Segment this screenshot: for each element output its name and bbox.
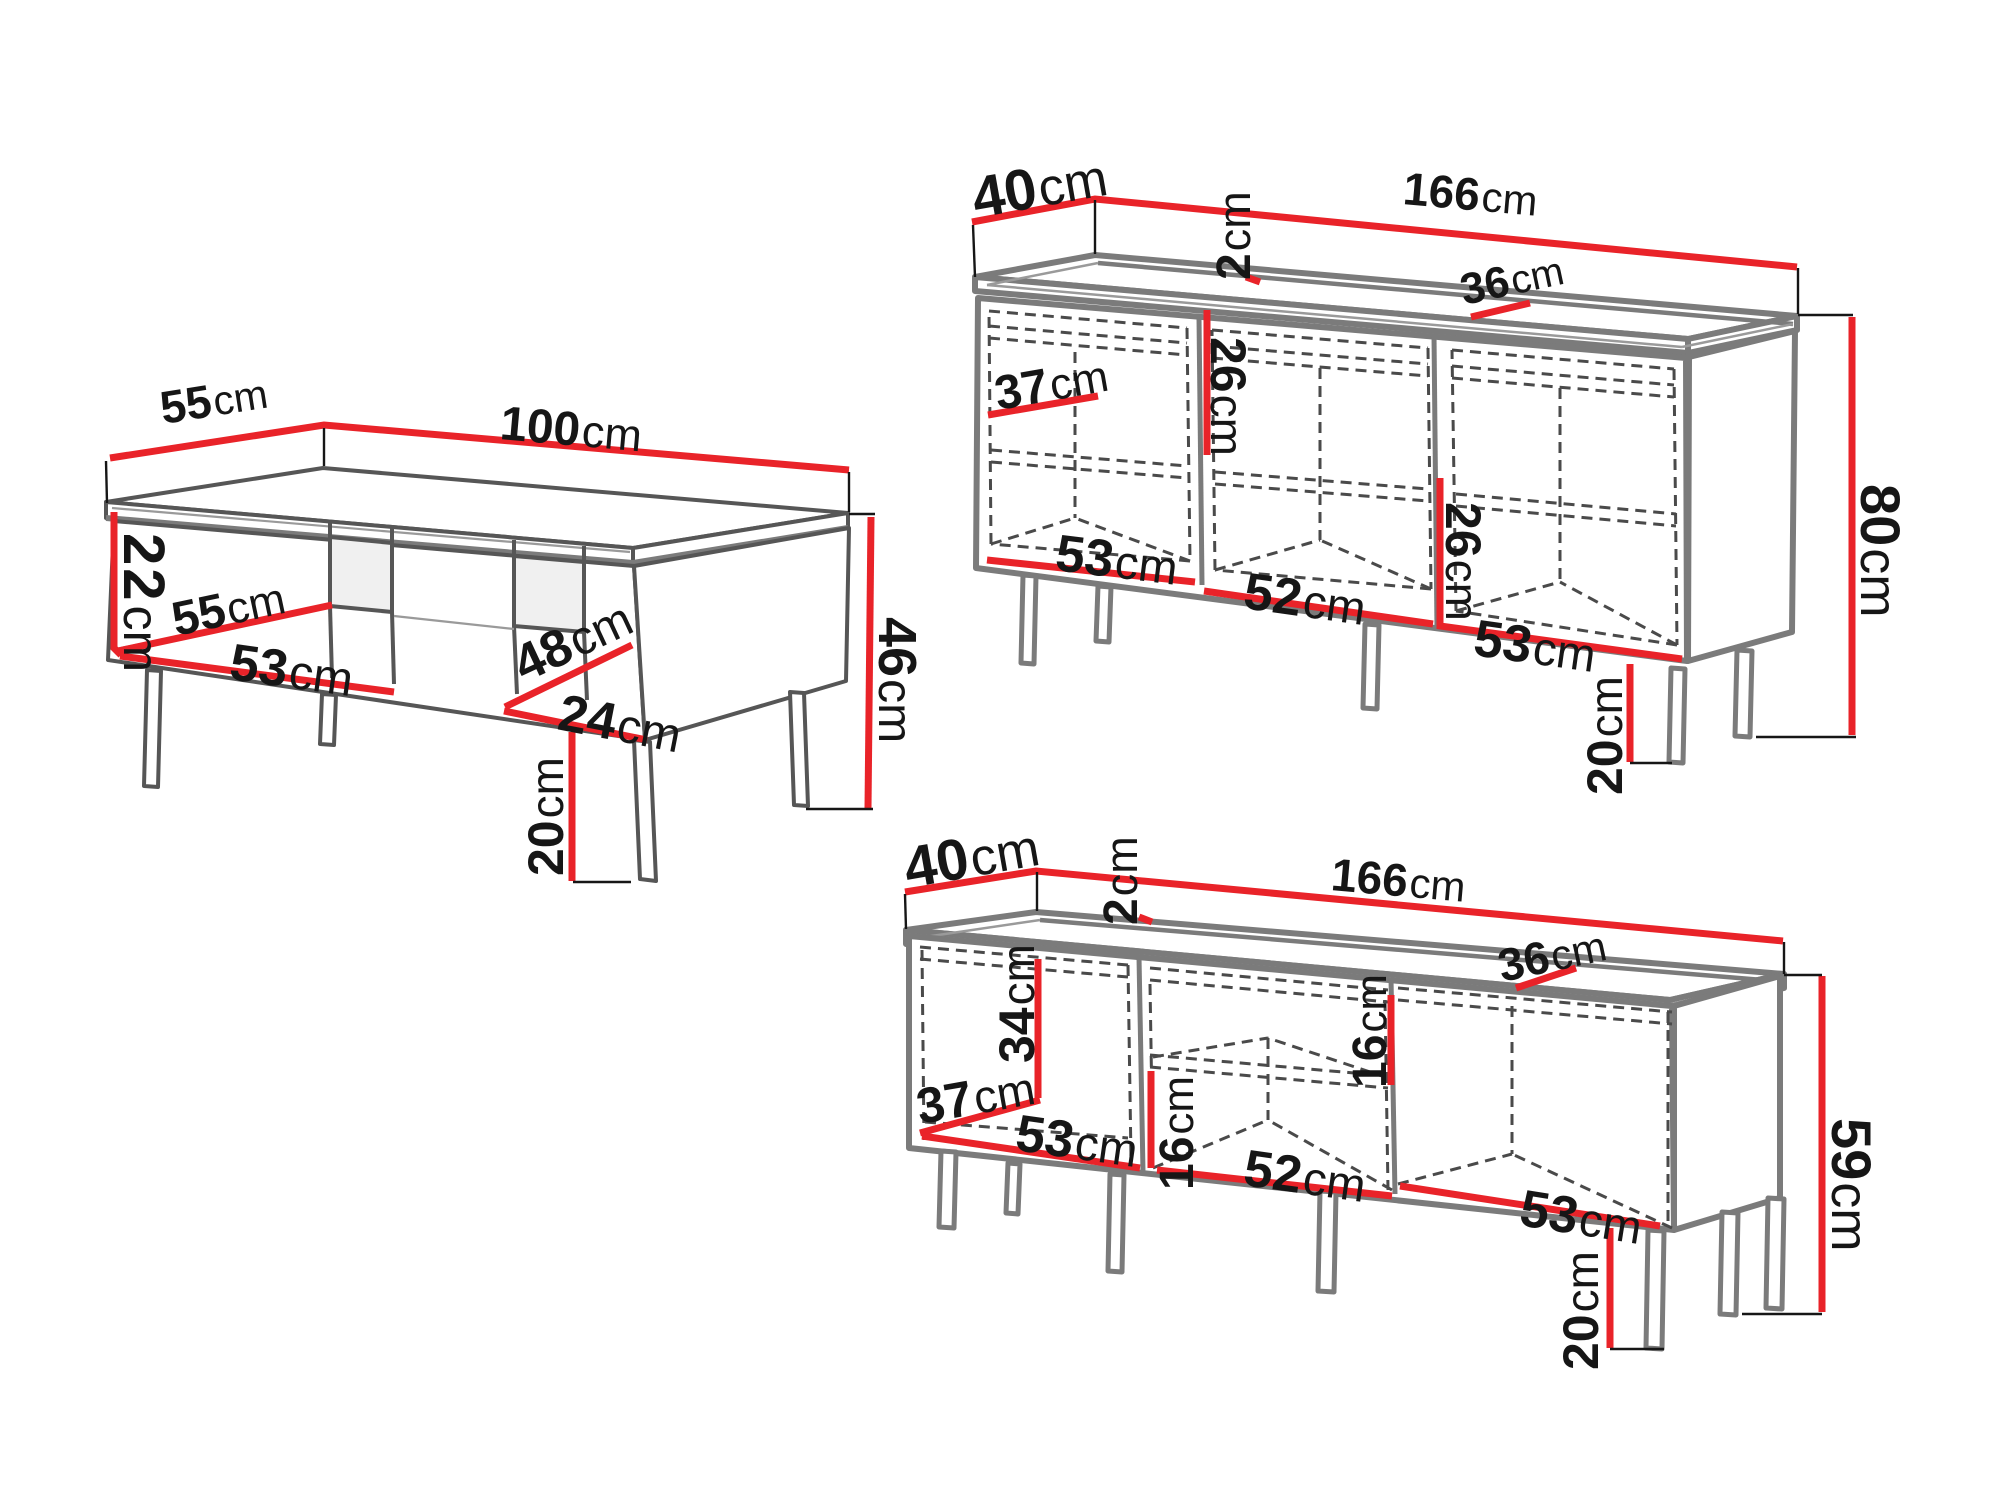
svg-text:34cm: 34cm [989, 944, 1045, 1063]
svg-text:59cm: 59cm [1820, 1118, 1883, 1252]
svg-text:26cm: 26cm [1435, 502, 1491, 621]
svg-text:26cm: 26cm [1200, 337, 1256, 456]
svg-text:16cm: 16cm [1344, 974, 1397, 1088]
svg-text:22cm: 22cm [111, 533, 176, 672]
svg-text:80cm: 80cm [1849, 484, 1912, 618]
svg-text:2cm: 2cm [1095, 836, 1148, 925]
svg-text:20cm: 20cm [1577, 676, 1633, 795]
svg-text:46cm: 46cm [867, 617, 927, 743]
svg-text:20cm: 20cm [1553, 1251, 1609, 1370]
svg-text:16cm: 16cm [1151, 1076, 1204, 1190]
svg-text:2cm: 2cm [1208, 191, 1261, 280]
svg-text:20cm: 20cm [518, 757, 574, 876]
